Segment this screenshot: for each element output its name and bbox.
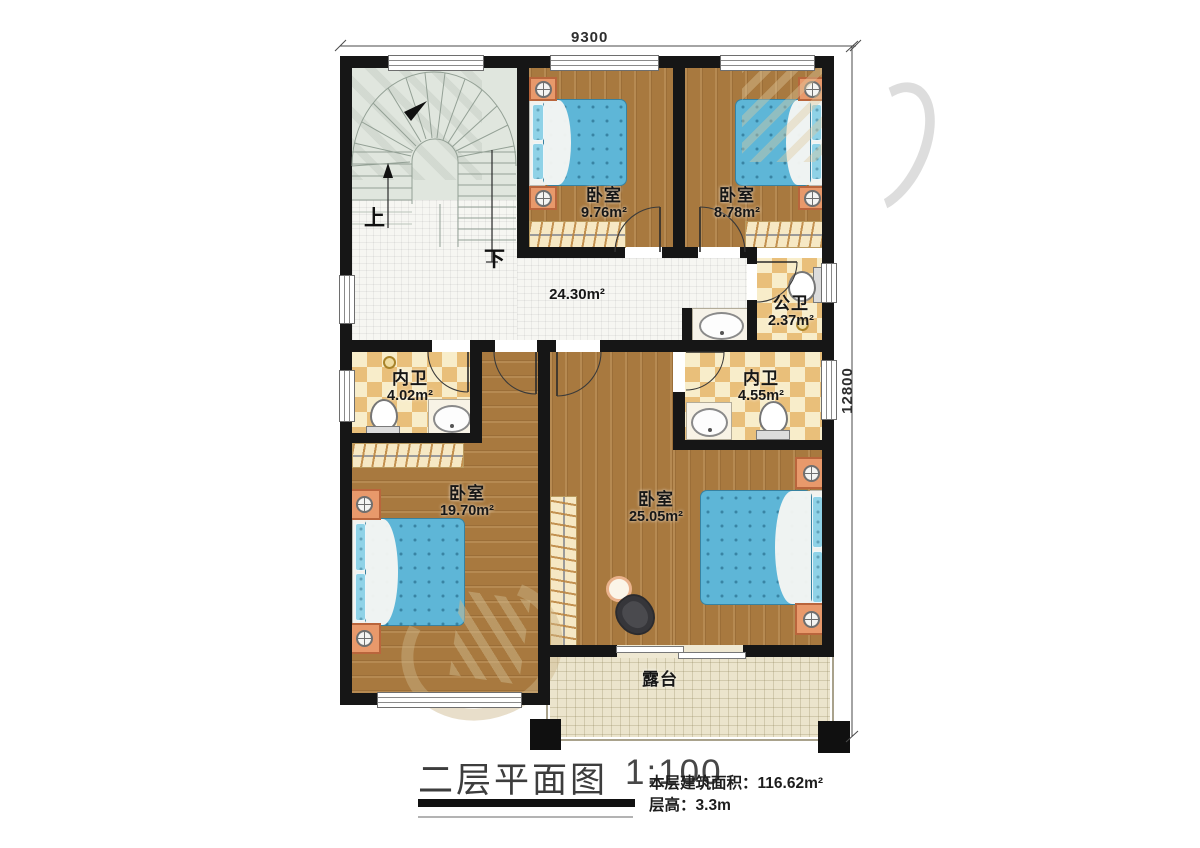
bed <box>700 490 812 605</box>
bedroom-bottom-left-floor <box>482 352 538 693</box>
corridor-floor-right <box>682 258 747 308</box>
stairs-down-label: 下 <box>484 243 505 273</box>
terrace-floor <box>546 651 834 741</box>
wall-between-bottom-bedrooms <box>538 352 550 705</box>
room-label-corridor: 24.30m² <box>549 287 605 304</box>
wall-bedroom-br-bottom-a <box>550 645 617 657</box>
wall-nook-left <box>682 308 692 340</box>
floor-height-row: 层高：3.3m <box>649 795 823 817</box>
bed <box>735 99 811 186</box>
room-label-terrace: 露台 <box>642 670 678 689</box>
window <box>377 692 522 708</box>
bed-pillow <box>532 104 544 141</box>
dimension-width-label: 9300 <box>571 29 608 46</box>
terrace-pillar <box>818 721 850 753</box>
terrace-pillar <box>530 719 561 750</box>
floor-area-row: 本层建筑面积：116.62m² <box>649 773 823 795</box>
window <box>821 263 837 303</box>
wall-ensuite-left-bottom <box>340 433 482 443</box>
room-label-bedroom-bottom-right: 卧室 25.05m² <box>629 490 683 525</box>
bed <box>543 99 627 186</box>
sink-basin <box>699 312 744 340</box>
wall-bedroom-br-bottom-b <box>743 645 834 657</box>
sliding-door-leaf <box>678 652 746 659</box>
floor-height-label: 层高： <box>649 797 696 814</box>
window <box>339 370 355 422</box>
bed-pillow <box>355 573 366 621</box>
nightstand <box>529 77 557 101</box>
wall-public-bath-left <box>747 258 757 264</box>
wall-public-bath-left2 <box>747 300 757 340</box>
window <box>821 360 837 420</box>
floor-area-value: 116.62m² <box>758 775 824 792</box>
room-label-ensuite-right: 内卫 4.55m² <box>738 369 784 404</box>
bed-pillow <box>355 523 366 571</box>
wall-right <box>822 56 834 657</box>
room-label-bedroom-top-left: 卧室 9.76m² <box>581 186 627 221</box>
bed-pillow <box>532 143 544 180</box>
wardrobe <box>745 221 824 248</box>
wall-corridor-north-b <box>662 247 698 258</box>
wall-stair-bedroom <box>517 56 529 258</box>
sink-basin <box>433 405 471 433</box>
nightstand <box>348 489 381 520</box>
room-label-ensuite-left: 内卫 4.02m² <box>387 369 433 404</box>
stairs-up-label: 上 <box>364 202 385 232</box>
dimension-height-label: 12800 <box>839 367 856 414</box>
window <box>339 275 355 324</box>
floor-area-label: 本层建筑面积： <box>649 775 758 792</box>
shower-drain <box>383 356 396 369</box>
stair-room-floor <box>352 68 517 210</box>
bed-pillow <box>811 143 822 180</box>
wall-corridor-south-b <box>470 340 495 352</box>
nightstand <box>348 623 381 654</box>
wall-between-top-bedrooms <box>673 56 685 258</box>
floor-plan-canvas: 9300 12800 上 下 卧室 9.76m² 卧室 8.78m² 24.30… <box>0 0 1200 848</box>
bed <box>365 518 465 626</box>
wardrobe <box>352 443 464 468</box>
wall-corridor-south-d <box>600 340 822 352</box>
window <box>550 55 659 71</box>
title-underline-bar <box>418 799 635 807</box>
wardrobe <box>550 496 577 648</box>
toilet-tank <box>756 430 790 440</box>
wall-corridor-north-c <box>740 247 757 258</box>
floor-height-value: 3.3m <box>696 797 731 814</box>
room-label-bedroom-bottom-left: 卧室 19.70m² <box>440 484 494 519</box>
wardrobe <box>529 221 626 248</box>
floor-info: 本层建筑面积：116.62m² 层高：3.3m <box>649 773 823 818</box>
wall-ensuite-left-right <box>470 352 482 433</box>
room-label-bedroom-top-right: 卧室 8.78m² <box>714 186 760 221</box>
sliding-door-leaf <box>616 646 684 653</box>
sink-basin <box>691 408 728 437</box>
wall-corridor-south-c <box>537 340 556 352</box>
watermark <box>822 68 954 229</box>
wall-corridor-south-a <box>340 340 432 352</box>
drawing-title: 二层平面图 <box>418 752 608 803</box>
window <box>388 55 484 71</box>
bed-pillow <box>811 104 822 141</box>
title-underline-thin <box>418 816 633 818</box>
nightstand <box>529 186 557 210</box>
window <box>720 55 815 71</box>
room-label-public-bath: 公卫 2.37m² <box>768 294 814 329</box>
wall-corridor-north-a <box>517 247 625 258</box>
wall-ensuite-right-bottom <box>673 440 822 450</box>
